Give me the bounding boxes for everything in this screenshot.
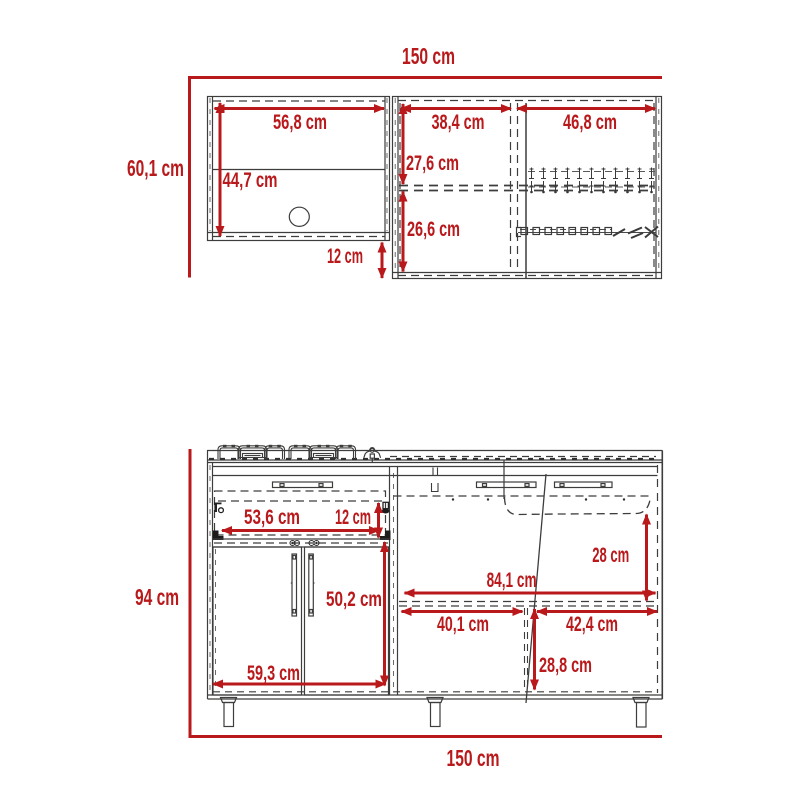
- svg-text:44,7 cm: 44,7 cm: [223, 169, 278, 192]
- svg-text:40,1 cm: 40,1 cm: [437, 613, 489, 636]
- svg-text:42,4 cm: 42,4 cm: [566, 613, 618, 636]
- svg-text:60,1 cm: 60,1 cm: [127, 155, 184, 181]
- svg-text:84,1 cm: 84,1 cm: [487, 569, 537, 592]
- svg-text:50,2 cm: 50,2 cm: [326, 588, 382, 611]
- svg-text:26,6 cm: 26,6 cm: [407, 218, 460, 241]
- svg-text:56,8 cm: 56,8 cm: [273, 111, 327, 134]
- svg-text:28,8 cm: 28,8 cm: [539, 654, 592, 677]
- svg-text:38,4 cm: 38,4 cm: [432, 111, 485, 134]
- svg-text:12 cm: 12 cm: [335, 506, 371, 529]
- svg-text:94 cm: 94 cm: [135, 584, 179, 610]
- svg-text:150 cm: 150 cm: [402, 43, 455, 69]
- svg-text:28 cm: 28 cm: [592, 544, 629, 567]
- svg-text:59,3 cm: 59,3 cm: [247, 662, 300, 685]
- svg-text:27,6 cm: 27,6 cm: [406, 152, 459, 175]
- svg-text:53,6 cm: 53,6 cm: [244, 506, 300, 529]
- svg-text:12 cm: 12 cm: [327, 245, 363, 268]
- svg-text:150 cm: 150 cm: [447, 745, 500, 771]
- svg-text:46,8 cm: 46,8 cm: [563, 111, 617, 134]
